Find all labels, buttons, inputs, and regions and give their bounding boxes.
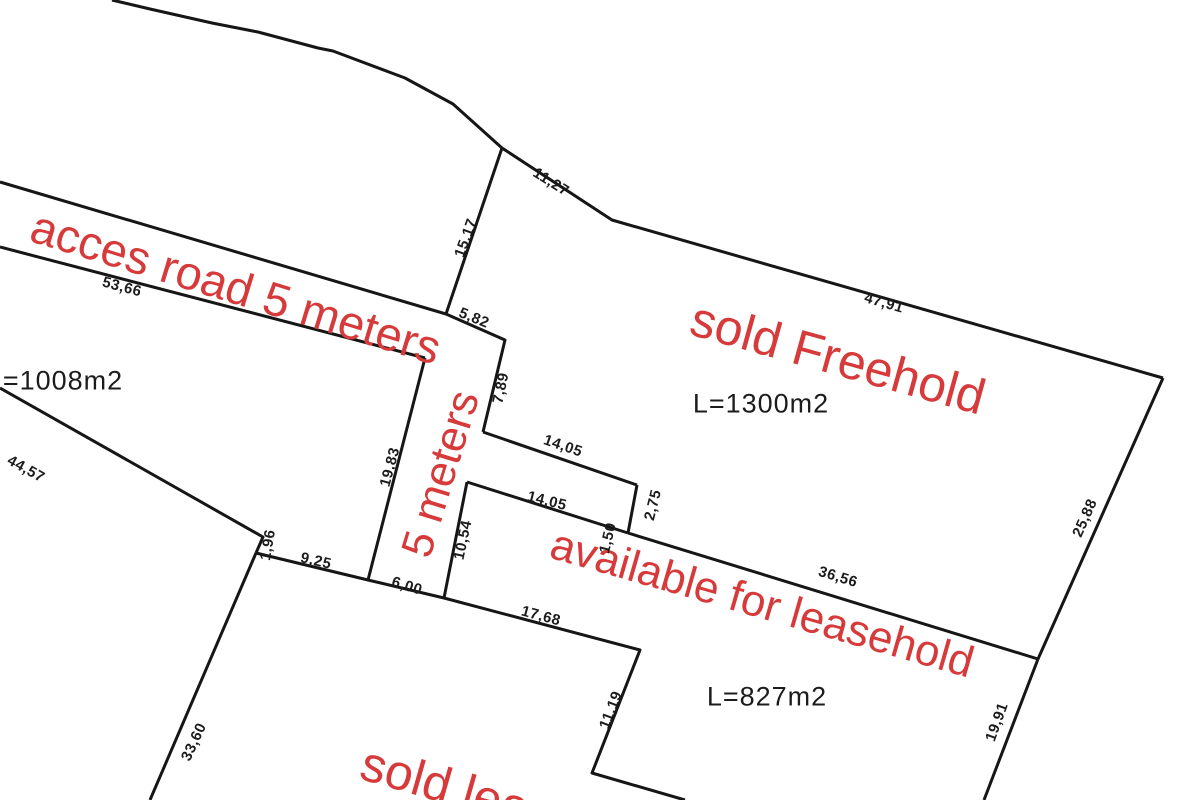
boundary-top-contour-line [112,0,502,148]
area-1008-label: L=1008m2 [0,366,123,397]
boundary-notch-segment [628,485,637,533]
boundary-freehold-east-edge [1038,378,1163,659]
plot-boundaries-drawing [0,0,1200,800]
boundary-southwest-edge [150,553,256,800]
area-827-label: L=827m2 [707,682,827,713]
area-1300-label: L=1300m2 [693,389,829,420]
survey-plan: acces road 5 meters 5 meters sold Freeho… [0,0,1200,800]
